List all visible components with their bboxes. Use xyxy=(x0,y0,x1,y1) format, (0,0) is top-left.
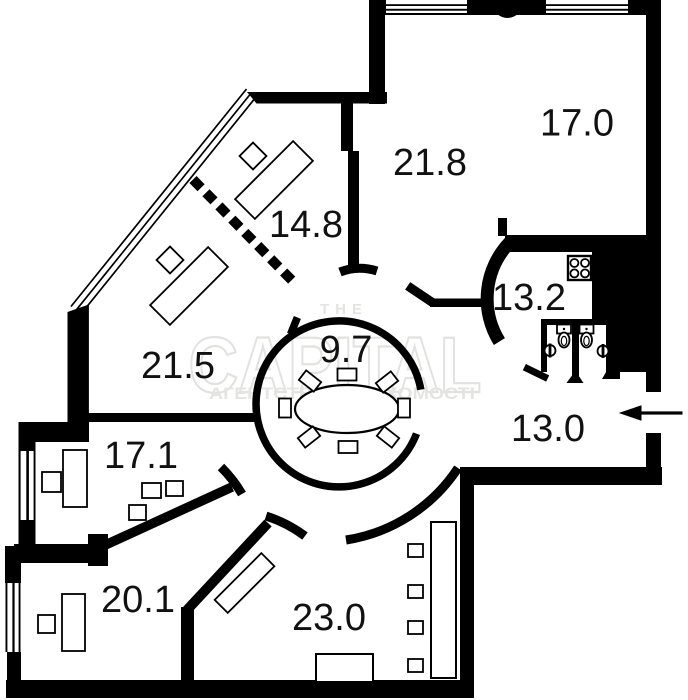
svg-text:13.2: 13.2 xyxy=(492,277,566,319)
svg-text:21.8: 21.8 xyxy=(393,142,467,184)
svg-text:23.0: 23.0 xyxy=(292,597,366,639)
svg-text:17.0: 17.0 xyxy=(540,103,614,145)
svg-text:THE: THE xyxy=(320,301,368,318)
svg-text:9.7: 9.7 xyxy=(320,329,373,371)
svg-text:21.5: 21.5 xyxy=(141,345,215,387)
svg-text:14.8: 14.8 xyxy=(269,204,343,246)
svg-text:13.0: 13.0 xyxy=(511,408,585,450)
svg-text:20.1: 20.1 xyxy=(101,579,175,621)
svg-text:17.1: 17.1 xyxy=(104,435,178,477)
